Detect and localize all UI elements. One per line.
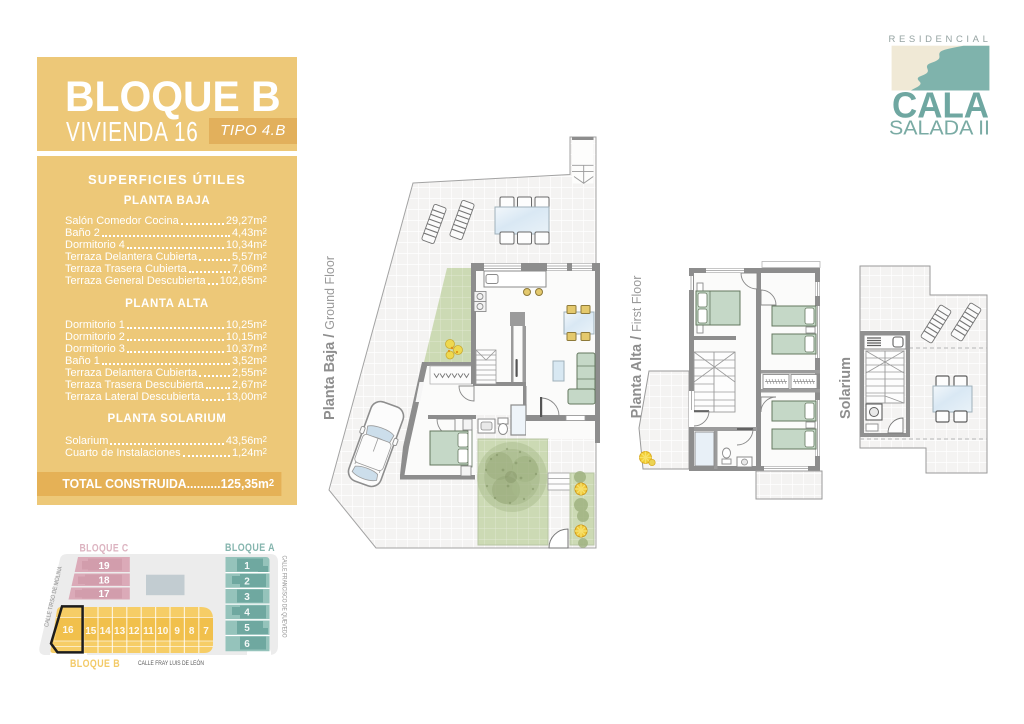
svg-text:8: 8 [189,626,195,637]
svg-text:1: 1 [244,561,250,572]
svg-text:BLOQUE B: BLOQUE B [70,658,120,670]
svg-text:16: 16 [62,625,74,636]
svg-text:5: 5 [244,623,250,634]
svg-text:BLOQUE C: BLOQUE C [80,543,129,555]
svg-text:SALADA II: SALADA II [889,117,990,140]
svg-text:14: 14 [100,626,112,637]
svg-text:Planta Baja / Ground Floor: Planta Baja / Ground Floor [322,256,338,420]
svg-text:2: 2 [244,577,250,588]
svg-text:18: 18 [98,576,110,587]
svg-text:RESIDENCIAL: RESIDENCIAL [889,34,992,45]
svg-text:CALLE FRAY LUIS DE LEÓN: CALLE FRAY LUIS DE LEÓN [138,658,204,667]
svg-text:4: 4 [244,608,250,619]
svg-text:Solarium: Solarium [838,357,854,419]
svg-text:7: 7 [203,626,209,637]
svg-text:BLOQUE A: BLOQUE A [225,542,275,554]
svg-text:13: 13 [114,626,126,637]
svg-text:6: 6 [244,639,250,650]
svg-text:15: 15 [85,626,97,637]
svg-text:17: 17 [98,589,110,600]
svg-text:CALLE FRANCISCO DE QUEVEDO: CALLE FRANCISCO DE QUEVEDO [281,556,288,638]
svg-text:10: 10 [157,626,169,637]
svg-text:3: 3 [244,592,250,603]
svg-text:Planta Alta / First Floor: Planta Alta / First Floor [629,276,645,419]
svg-text:19: 19 [98,561,110,572]
svg-text:12: 12 [128,626,140,637]
svg-text:9: 9 [174,626,180,637]
svg-text:11: 11 [143,626,154,637]
